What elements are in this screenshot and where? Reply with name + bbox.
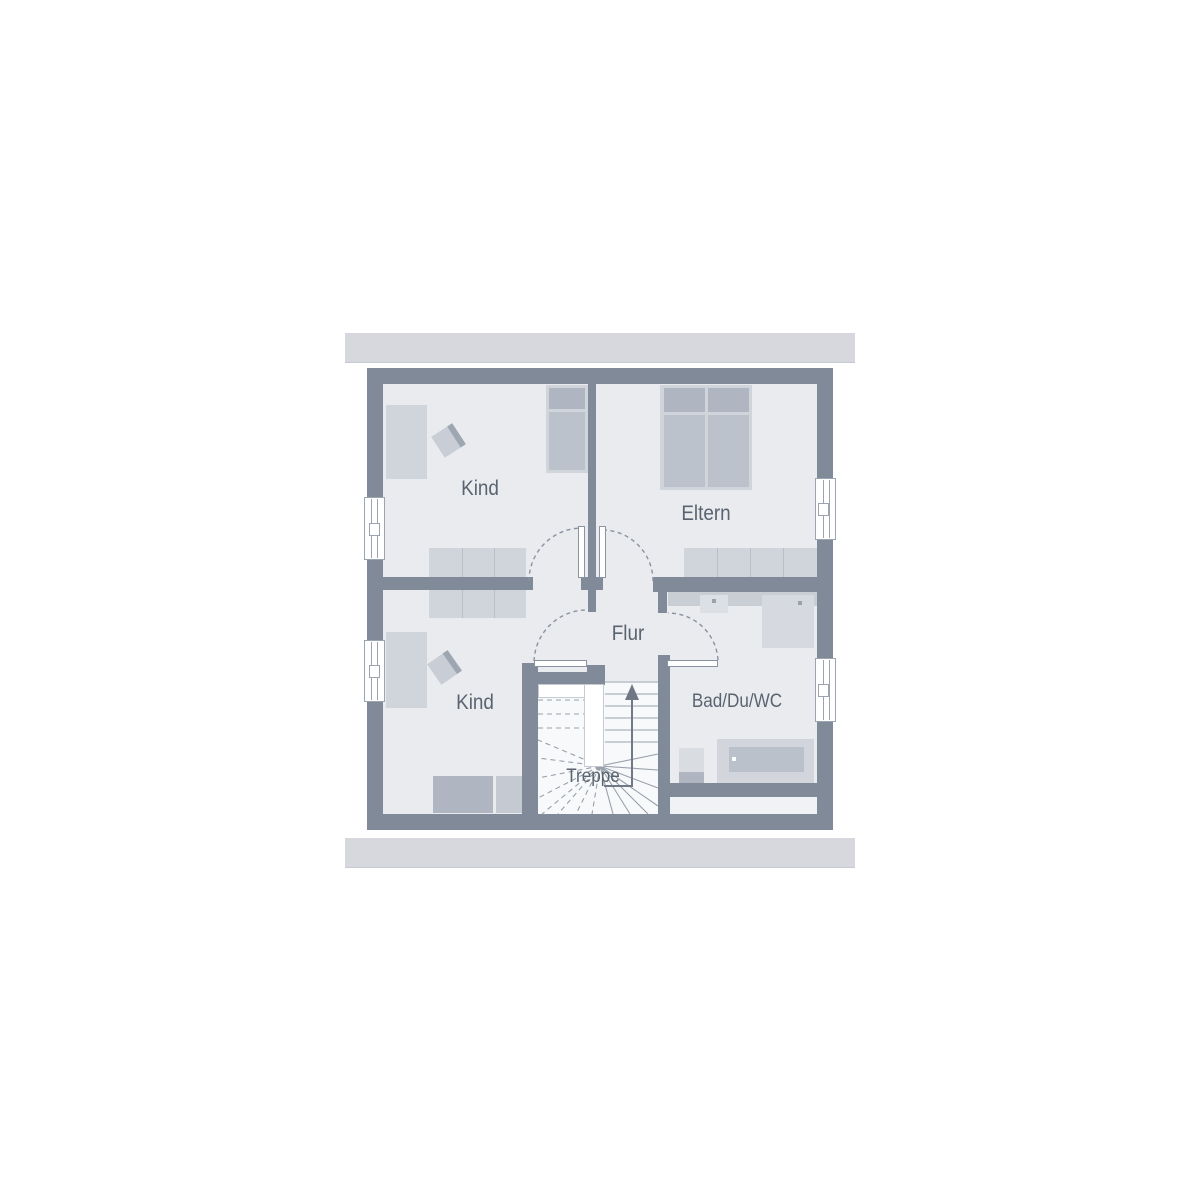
- stair-landing-rail: [584, 684, 604, 767]
- bed: [433, 776, 493, 813]
- bed-mattress: [664, 415, 705, 487]
- double-bed: [660, 385, 752, 490]
- roof-band-bottom: [345, 838, 855, 868]
- toilet: [679, 748, 704, 772]
- dresser: [429, 590, 526, 618]
- desk: [386, 405, 427, 479]
- wall-exterior-top: [367, 368, 833, 384]
- door-leaf: [578, 526, 585, 578]
- toilet-cistern: [679, 772, 704, 783]
- wall-kind-eltern: [588, 384, 596, 577]
- bed-pillow: [549, 388, 585, 409]
- bed-pillow: [664, 388, 705, 412]
- bathtub: [717, 739, 814, 783]
- bed-mattress: [708, 415, 749, 487]
- wall-bath-south: [667, 783, 817, 797]
- room-label-eltern: Eltern: [681, 502, 730, 526]
- wall-junction-stub: [588, 590, 596, 612]
- wall-stair-left: [522, 663, 538, 814]
- wall-exterior-right: [817, 384, 833, 814]
- window: [364, 640, 385, 702]
- washbasin: [700, 595, 728, 613]
- room-label-kind-bottom: Kind: [456, 691, 494, 715]
- wall-exterior-left: [367, 384, 383, 814]
- bath-storage-strip: [668, 797, 817, 814]
- shower: [762, 595, 814, 648]
- room-label-treppe: Treppe: [566, 766, 620, 788]
- window: [815, 478, 836, 540]
- door-leaf: [534, 660, 587, 667]
- wall-bad-stub: [658, 592, 667, 613]
- wall-exterior-bottom: [367, 814, 833, 830]
- dresser: [429, 548, 526, 578]
- bed-mattress: [549, 412, 585, 470]
- wall-kind-flur: [367, 577, 533, 590]
- window: [815, 658, 836, 722]
- bed-pillow: [708, 388, 749, 412]
- floor-plan-page: { "rooms": { "kind_top": { "label": "Kin…: [0, 0, 1200, 1200]
- room-label-flur: Flur: [612, 622, 645, 646]
- door-leaf: [599, 526, 606, 578]
- bathtub-basin: [729, 747, 804, 772]
- bed-pillow: [496, 776, 523, 813]
- floor-plan: Kind Eltern Flur Kind Bad/Du/WC Treppe: [0, 0, 1200, 1200]
- wall-eltern-bad: [653, 577, 817, 592]
- window: [364, 497, 385, 560]
- room-label-kind-top: Kind: [461, 477, 499, 501]
- wall-junction-block: [581, 577, 603, 590]
- roof-band-top: [345, 333, 855, 363]
- bed: [546, 385, 588, 473]
- door-leaf: [667, 660, 718, 667]
- desk: [386, 632, 427, 708]
- room-label-bad: Bad/Du/WC: [692, 691, 782, 713]
- wall-stair-top-block: [587, 665, 605, 685]
- wardrobe: [684, 548, 818, 578]
